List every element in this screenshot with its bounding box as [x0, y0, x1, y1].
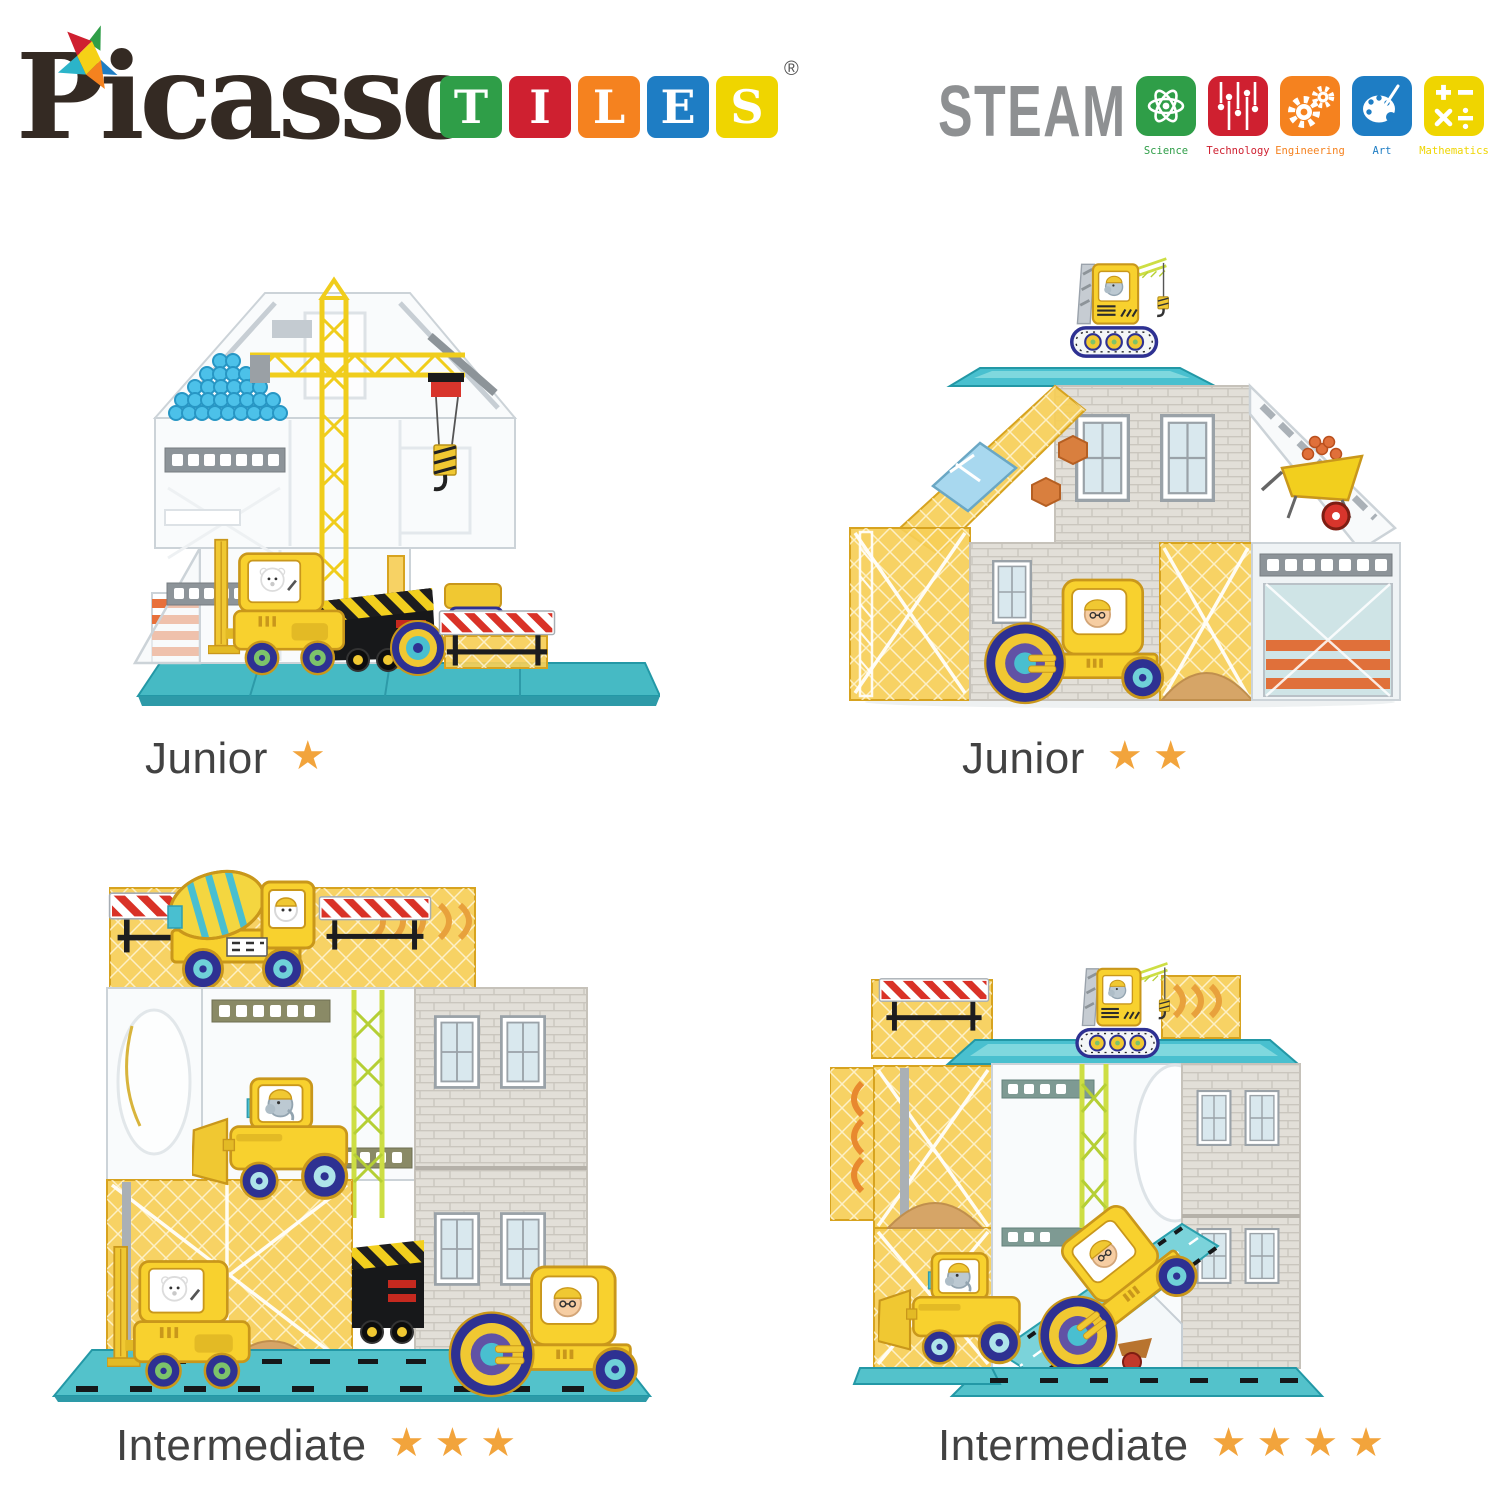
build-photo-intermediate-4 [830, 928, 1450, 1412]
steam-label-mathematics: Mathematics [1419, 145, 1489, 157]
steam-item-art: Art [1352, 76, 1412, 157]
steam-label-art: Art [1373, 145, 1392, 157]
picassotiles-logo: Picasso T I L E S ® [16, 24, 846, 184]
difficulty-caption-1: Junior ★ [145, 733, 336, 784]
chevron-tile-top [1162, 976, 1240, 1038]
difficulty-level: Junior [145, 734, 268, 784]
base-plate [138, 663, 660, 706]
difficulty-stars: ★★★★ [1211, 1420, 1394, 1471]
tile-letter-s: S [716, 76, 778, 138]
crawler-crane [1077, 963, 1169, 1056]
garage-section [1252, 543, 1400, 700]
steam-item-technology: Technology [1208, 76, 1268, 157]
steam-label-science: Science [1144, 145, 1188, 157]
steam-item-engineering: Engineering [1280, 76, 1340, 157]
steam-item-science: Science [1136, 76, 1196, 157]
tiles-wordmark: T I L E S [440, 76, 778, 138]
dump-truck [352, 1240, 424, 1343]
teal-roof-platform [950, 368, 1215, 386]
barrier-table [439, 611, 554, 668]
build-photo-intermediate-3 [22, 850, 662, 1402]
road-roller-drum [391, 621, 445, 675]
steam-title: STEAM [938, 76, 1127, 148]
gears-icon [1280, 76, 1340, 136]
chevron-tile-left [830, 1068, 874, 1220]
math-icon [1424, 76, 1484, 136]
circuit-icon [1208, 76, 1268, 136]
steam-logo: STEAM Science [938, 70, 1200, 148]
crawler-crane [1072, 259, 1169, 356]
atom-icon [1136, 76, 1196, 136]
tile-letter-i: I [509, 76, 571, 138]
pinwheel-star-icon [52, 22, 128, 94]
difficulty-level: Intermediate [116, 1421, 367, 1471]
steam-label-engineering: Engineering [1275, 145, 1345, 157]
steam-label-technology: Technology [1206, 145, 1269, 157]
tile-letter-e: E [647, 76, 709, 138]
lower-left-amber-panel [850, 528, 970, 700]
difficulty-stars: ★★ [1107, 733, 1199, 784]
product-image: Picasso T I L E S ® STEAM [0, 0, 1500, 1500]
difficulty-caption-2: Junior ★★ [962, 733, 1199, 784]
palette-icon [1352, 76, 1412, 136]
difficulty-level: Intermediate [938, 1421, 1189, 1471]
difficulty-stars: ★ [290, 733, 336, 784]
tile-letter-t: T [440, 76, 502, 138]
steam-subjects: Science Technology [1136, 76, 1484, 157]
difficulty-stars: ★★★ [389, 1420, 527, 1471]
build-photo-junior-1 [100, 258, 660, 720]
build-photo-junior-2 [830, 228, 1410, 710]
registered-mark: ® [784, 58, 799, 81]
difficulty-caption-3: Intermediate ★★★ [116, 1420, 526, 1471]
wheelbarrow [1262, 437, 1362, 530]
difficulty-caption-4: Intermediate ★★★★ [938, 1420, 1394, 1471]
tile-letter-l: L [578, 76, 640, 138]
difficulty-level: Junior [962, 734, 1085, 784]
base-plates [854, 1368, 1322, 1396]
steam-item-mathematics: Mathematics [1424, 76, 1484, 157]
brick-tower [1182, 1064, 1300, 1368]
